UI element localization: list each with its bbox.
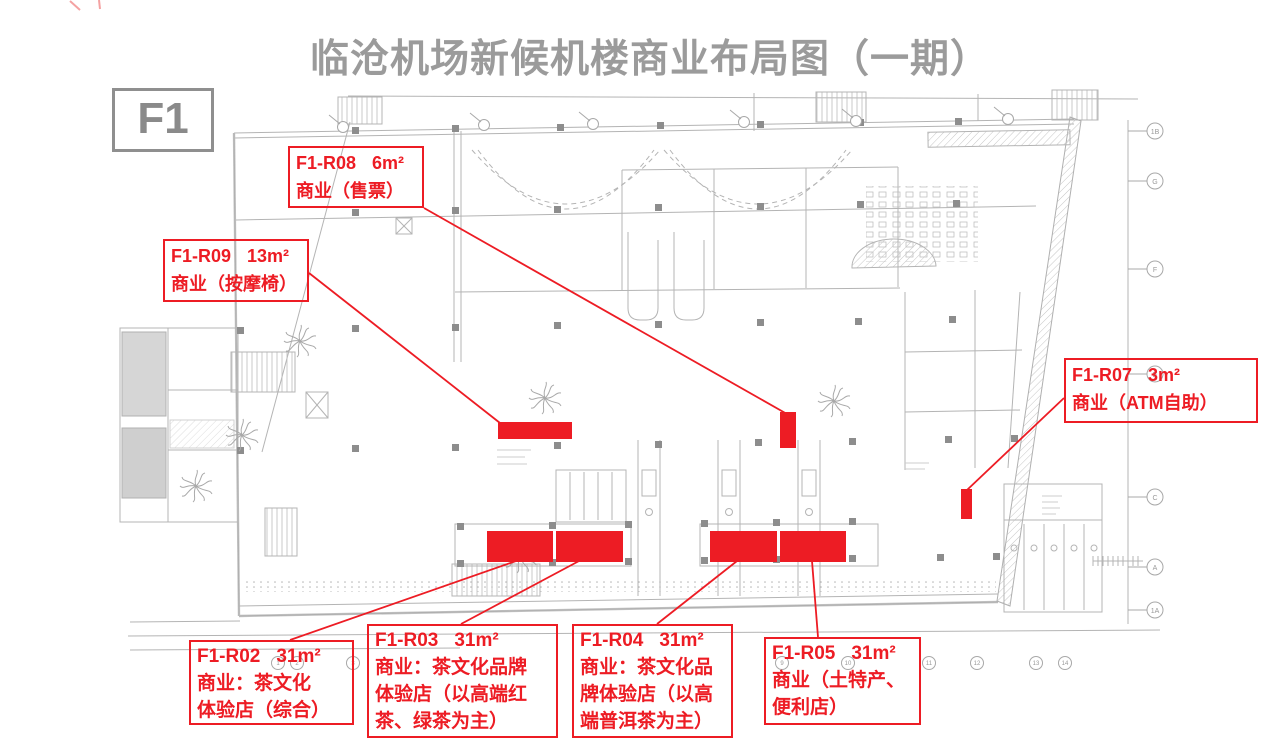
shop-area-r04	[710, 531, 777, 562]
callout-r03-desc: 茶、绿茶为主）	[375, 708, 550, 735]
callout-r03-desc: 商业：茶文化品牌	[375, 654, 550, 681]
callout-r02: F1-R0231m² 商业：茶文化 体验店（综合）	[189, 640, 354, 725]
callout-r04-desc: 商业：茶文化品	[580, 654, 725, 681]
callout-r05: F1-R0531m² 商业（土特产、 便利店）	[764, 637, 921, 725]
callout-r03-code-line: F1-R0331m²	[375, 627, 550, 654]
slide: 1 2 3 9 10 11 12 13 14 1B G F E C A	[0, 0, 1268, 751]
floor-level-badge: F1	[112, 88, 214, 152]
callout-r05-desc: 商业（土特产、	[772, 667, 913, 694]
callout-r04-desc: 端普洱茶为主）	[580, 708, 725, 735]
callout-r03: F1-R0331m² 商业：茶文化品牌 体验店（以高端红 茶、绿茶为主）	[367, 624, 558, 738]
callout-r05-code-line: F1-R0531m²	[772, 640, 913, 667]
callout-r09: F1-R0913m² 商业（按摩椅）	[163, 239, 309, 302]
callout-r04: F1-R0431m² 商业：茶文化品 牌体验店（以高 端普洱茶为主）	[572, 624, 733, 738]
callout-r07-code-line: F1-R073m²	[1072, 361, 1250, 389]
page-title: 临沧机场新候机楼商业布局图（一期）	[200, 28, 1100, 84]
callout-r09-code-line: F1-R0913m²	[171, 242, 301, 270]
callout-r03-desc: 体验店（以高端红	[375, 681, 550, 708]
callout-r04-code-line: F1-R0431m²	[580, 627, 725, 654]
shop-area-r08	[780, 412, 796, 448]
leader-line-r07	[967, 398, 1064, 490]
leader-line-r03	[461, 561, 579, 624]
leader-line-r09	[309, 273, 500, 423]
callout-r02-desc: 商业：茶文化	[197, 670, 346, 697]
callout-r08: F1-R086m² 商业（售票）	[288, 146, 424, 208]
shop-area-r09	[498, 422, 572, 439]
callout-r04-desc: 牌体验店（以高	[580, 681, 725, 708]
shop-area-r05	[780, 531, 846, 562]
callout-r08-desc: 商业（售票）	[296, 177, 416, 205]
leader-line-r05	[812, 561, 818, 637]
leader-line-r08	[424, 208, 787, 414]
callout-r08-code-line: F1-R086m²	[296, 149, 416, 177]
callout-r02-code-line: F1-R0231m²	[197, 643, 346, 670]
shop-area-r03	[556, 531, 623, 562]
callout-r07: F1-R073m² 商业（ATM自助）	[1064, 358, 1258, 423]
shop-area-r02	[487, 531, 553, 562]
leader-line-r04	[657, 561, 737, 624]
callout-r07-desc: 商业（ATM自助）	[1072, 389, 1250, 417]
callout-r09-desc: 商业（按摩椅）	[171, 270, 301, 298]
shop-area-r07	[961, 489, 972, 519]
callout-r02-desc: 体验店（综合）	[197, 697, 346, 724]
callout-r05-desc: 便利店）	[772, 694, 913, 721]
